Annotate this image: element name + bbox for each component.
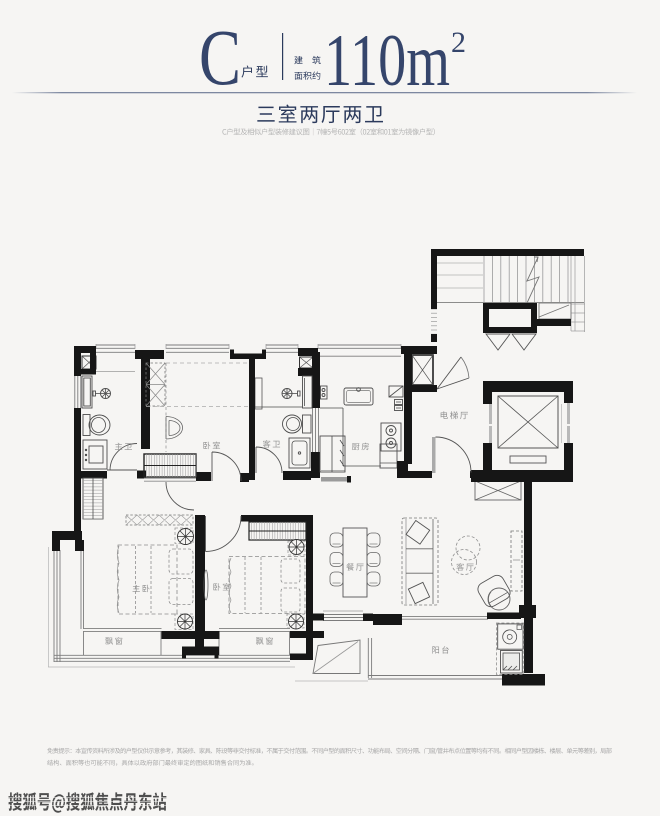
svg-text:110m: 110m: [324, 20, 450, 102]
svg-text:2: 2: [451, 26, 466, 59]
svg-text:C: C: [199, 15, 241, 102]
